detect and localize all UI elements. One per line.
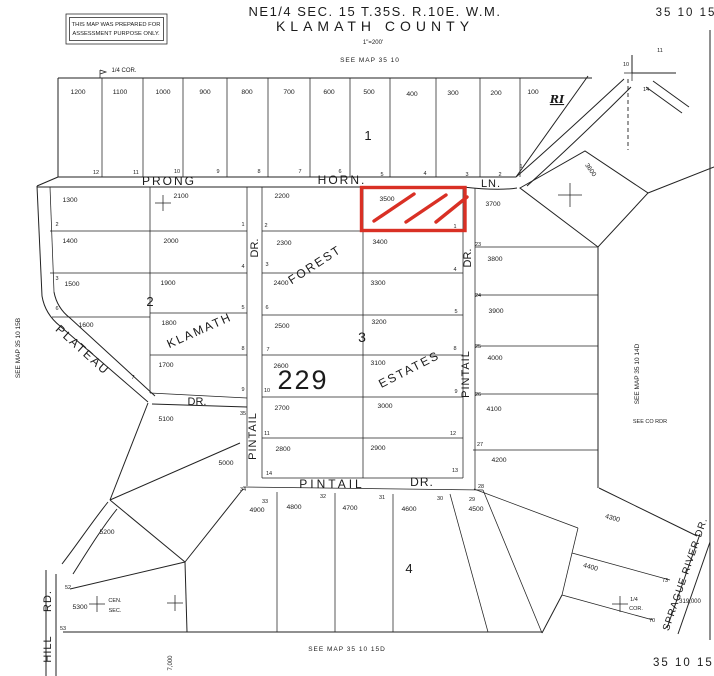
map-label-ri: RI [549, 93, 565, 106]
map-label-3: 3 [465, 172, 468, 178]
map-label-9: 9 [216, 169, 219, 175]
map-label-dr-: DR. [249, 239, 261, 258]
map-label-2400: 2400 [273, 280, 288, 287]
map-label-32: 32 [320, 494, 326, 500]
map-label-3700: 3700 [485, 201, 500, 208]
map-label-11: 11 [264, 431, 270, 437]
map-label-1600: 1600 [78, 322, 93, 329]
map-label-dr-: DR. [410, 475, 434, 489]
plat-map: NE1/4 SEC. 15 T.35S. R.10E. W.M. KLAMATH… [0, 0, 714, 676]
map-label-2800: 2800 [275, 446, 290, 453]
map-label-4: 4 [423, 171, 426, 177]
map-label-5: 5 [380, 172, 383, 178]
map-label-10: 10 [264, 388, 270, 394]
map-label-3200: 3200 [371, 319, 386, 326]
map-label-11: 11 [657, 48, 663, 54]
map-label-12: 12 [93, 170, 99, 176]
map-label-28: 28 [478, 484, 484, 490]
map-title-line2: KLAMATH COUNTY [276, 18, 474, 34]
map-label-5: 5 [454, 309, 457, 315]
map-label-4: 4 [453, 267, 456, 273]
map-label-2: 2 [146, 294, 153, 309]
map-label-400: 400 [406, 91, 418, 98]
map-label-4600: 4600 [401, 506, 416, 513]
map-label-cen-: CEN. [108, 598, 122, 604]
map-label-3000: 3000 [377, 403, 392, 410]
map-label-10: 10 [623, 62, 629, 68]
parcel-lines [50, 78, 670, 633]
map-label-1000: 1000 [155, 89, 170, 96]
map-label-2300: 2300 [276, 240, 291, 247]
road-and-boundary-lines [37, 30, 714, 676]
map-label-300: 300 [447, 90, 459, 97]
map-label-pintail: PINTAIL [299, 477, 364, 491]
map-label-2600: 2600 [273, 363, 288, 370]
map-label-26: 26 [475, 392, 481, 398]
map-label-7: 7 [298, 169, 301, 175]
map-label-2: 2 [498, 172, 501, 178]
map-label-2000: 2000 [163, 238, 178, 245]
map-label-4500: 4500 [468, 506, 483, 513]
highlighted-parcel-3500[interactable] [362, 188, 468, 231]
map-label-7-000: 7,000 [168, 655, 174, 671]
map-label-6: 6 [55, 306, 58, 312]
map-label-3500: 3500 [379, 196, 394, 203]
map-label-35: 35 [240, 411, 246, 417]
map-label-3100: 3100 [370, 360, 385, 367]
map-label-4200: 4200 [491, 457, 506, 464]
map-label-1900: 1900 [160, 280, 175, 287]
map-label-11: 11 [133, 170, 139, 176]
map-label-8: 8 [453, 346, 456, 352]
disclaimer-line2: ASSESSMENT PURPOSE ONLY. [72, 31, 160, 37]
map-label-forest: FOREST [286, 242, 345, 287]
map-label-9: 9 [241, 387, 244, 393]
map-label-2100: 2100 [173, 193, 188, 200]
map-label-7: 7 [266, 347, 269, 353]
map-label-see-map-35-10-15b: SEE MAP 35 10 15B [15, 318, 22, 378]
map-label-33: 33 [262, 499, 268, 505]
map-label-3900: 3900 [488, 308, 503, 315]
map-label-30: 30 [437, 496, 443, 502]
map-label-4300: 4300 [604, 513, 621, 524]
map-label-700: 700 [283, 89, 295, 96]
map-label-1-4-cor-: 1/4 COR. [111, 68, 136, 74]
map-label-1100: 1100 [113, 89, 128, 96]
map-title-line1: NE1/4 SEC. 15 T.35S. R.10E. W.M. [249, 4, 502, 19]
map-label-2200: 2200 [274, 193, 289, 200]
map-label-4800: 4800 [286, 504, 301, 511]
map-label-52: 52 [65, 585, 71, 591]
map-label-see-map-35-10-15d: SEE MAP 35 10 15D [308, 646, 386, 653]
map-label-5: 5 [241, 305, 244, 311]
map-label-4: 4 [241, 264, 244, 270]
disclaimer-box: THIS MAP WAS PREPARED FOR ASSESSMENT PUR… [66, 14, 167, 44]
map-label-sprague-river-dr-: SPRAGUE RIVER DR. [661, 516, 710, 632]
map-label-sec-: SEC. [109, 608, 122, 614]
map-label-2900: 2900 [370, 445, 385, 452]
plat-map-page: NE1/4 SEC. 15 T.35S. R.10E. W.M. KLAMATH… [0, 0, 714, 676]
map-label-horn-: HORN. [318, 173, 367, 187]
map-label-pintail: PINTAIL [460, 350, 472, 398]
map-label-klamath: KLAMATH [165, 310, 234, 351]
disclaimer-line1: THIS MAP WAS PREPARED FOR [72, 22, 161, 28]
map-label-4700: 4700 [342, 505, 357, 512]
map-label-1-4: 1/4 [630, 597, 638, 603]
map-label-prong: PRONG [142, 174, 196, 188]
map-label-25: 25 [475, 344, 481, 350]
map-label-800: 800 [241, 89, 253, 96]
map-label-1800: 1800 [161, 320, 176, 327]
map-label-7: 7 [131, 375, 134, 381]
map-label-3: 3 [55, 276, 58, 282]
map-label-29: 29 [469, 497, 475, 503]
map-label-9: 9 [454, 389, 457, 395]
map-label-hill: HILL [42, 635, 54, 662]
map-label-31: 31 [379, 495, 385, 501]
map-label-34: 34 [240, 487, 246, 493]
sheet-number-top: 35 10 15 [656, 7, 714, 19]
map-label-12: 12 [450, 431, 456, 437]
map-label-2: 2 [55, 222, 58, 228]
map-label-rd-: RD. [42, 590, 54, 612]
map-label-1500: 1500 [64, 281, 79, 288]
map-label-1: 1 [453, 224, 456, 230]
map-label-1300: 1300 [62, 197, 77, 204]
map-label-4100: 4100 [486, 406, 501, 413]
map-label-4900: 4900 [249, 507, 264, 514]
map-label-23: 23 [475, 242, 481, 248]
map-label-10: 10 [174, 169, 180, 175]
map-label-ln-: LN. [481, 178, 501, 190]
map-label-24: 24 [475, 293, 481, 299]
map-label-dr-: DR. [462, 249, 474, 268]
map-label-estates: ESTATES [376, 348, 442, 391]
map-label-4000: 4000 [487, 355, 502, 362]
map-label-5000: 5000 [218, 460, 233, 467]
map-label-1200: 1200 [70, 89, 85, 96]
map-label-dr-: DR. [188, 396, 207, 408]
map-label-6: 6 [338, 169, 341, 175]
map-label-1: 1 [364, 128, 371, 143]
map-label-2: 2 [264, 223, 267, 229]
map-label-14: 14 [643, 87, 649, 93]
map-label-3300: 3300 [370, 280, 385, 287]
map-label-100: 100 [527, 89, 539, 96]
map-label-1400: 1400 [62, 238, 77, 245]
sheet-number-bottom: 35 10 15. [653, 657, 714, 669]
map-label-53: 53 [60, 626, 66, 632]
map-label-see-co-rdr: SEE CO RDR [633, 419, 667, 425]
map-label-27: 27 [477, 442, 483, 448]
map-label-3400: 3400 [372, 239, 387, 246]
map-label-600: 600 [323, 89, 335, 96]
map-label-see-map-35-10-14d: SEE MAP 35 10 14D [634, 343, 641, 404]
map-label-73: 73 [662, 578, 668, 584]
map-label-70: 70 [649, 618, 655, 624]
map-label-3800: 3800 [487, 256, 502, 263]
map-label-6: 6 [265, 305, 268, 311]
map-label-1: 1 [519, 164, 522, 170]
map-label-pintail: PINTAIL [247, 412, 259, 460]
map-label-see-map-35-10: SEE MAP 35 10 [340, 57, 400, 64]
map-label-8: 8 [241, 346, 244, 352]
map-label-1: 1 [241, 222, 244, 228]
map-label-5100: 5100 [158, 416, 173, 423]
map-label-13: 13 [452, 468, 458, 474]
map-label-5200: 5200 [99, 529, 114, 536]
map-label-4400: 4400 [582, 562, 599, 573]
map-label-900: 900 [199, 89, 211, 96]
map-label-2700: 2700 [274, 405, 289, 412]
map-label-8: 8 [257, 169, 260, 175]
map-label-plateau: PLATEAU [53, 322, 113, 378]
map-label-14: 14 [266, 471, 272, 477]
map-label-3: 3 [358, 329, 366, 345]
map-label-1700: 1700 [158, 362, 173, 369]
map-label-4: 4 [405, 561, 412, 576]
map-label-3: 3 [265, 262, 268, 268]
map-label-2500: 2500 [274, 323, 289, 330]
map-label-200: 200 [490, 90, 502, 97]
map-scale: 1"=200' [363, 40, 383, 46]
map-label-3600: 3600 [583, 162, 597, 178]
map-label-cor-: COR. [629, 606, 643, 612]
map-label-500: 500 [363, 89, 375, 96]
quarter-corner-mark [100, 70, 106, 78]
map-label-5300: 5300 [72, 604, 87, 611]
